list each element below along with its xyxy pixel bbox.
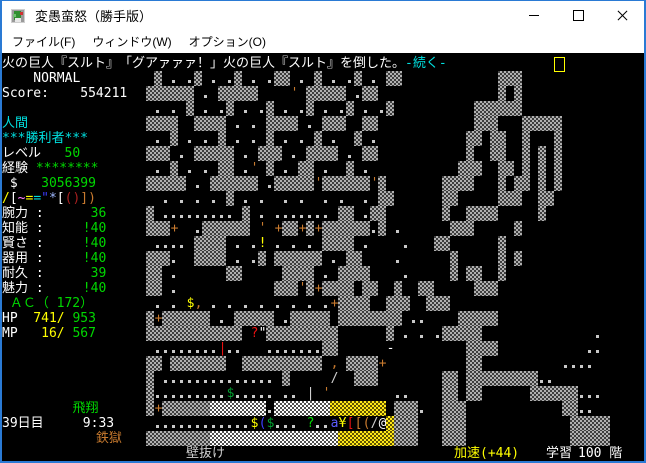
- map-floor-dot: [580, 395, 583, 398]
- map-granite-wall: [362, 116, 370, 131]
- map-granite-wall: [154, 281, 162, 296]
- map-granite-wall: [298, 311, 306, 326]
- map-floor-dot: [420, 320, 423, 323]
- map-granite-wall: [242, 311, 250, 326]
- map-granite-wall: [210, 221, 218, 236]
- map-granite-wall: [306, 266, 314, 281]
- map-granite-wall: [474, 101, 482, 116]
- map-granite-wall: [306, 86, 314, 101]
- map-granite-wall: [538, 161, 546, 176]
- map-closed-door: +: [170, 221, 179, 236]
- map-granite-wall: [498, 146, 506, 161]
- map-granite-wall: [146, 356, 154, 371]
- map-granite-wall: [194, 431, 202, 446]
- map-gold-green: $: [226, 386, 235, 401]
- map-floor-dot: [588, 410, 591, 413]
- map-floor-dot: [268, 410, 271, 413]
- status-item-2: 学習: [546, 446, 572, 459]
- map-granite-wall: [546, 116, 554, 131]
- map-floor-dot: [260, 200, 263, 203]
- map-floor-dot: [204, 395, 207, 398]
- map-floor-dot: [340, 110, 343, 113]
- map-granite-wall: [466, 356, 474, 371]
- map-quartz-wall: [322, 401, 330, 416]
- map-floor-dot: [180, 215, 183, 218]
- map-floor-dot: [172, 110, 175, 113]
- map-granite-wall: [466, 221, 474, 236]
- map-granite-wall: [474, 266, 482, 281]
- map-treasure-vein: [362, 401, 370, 416]
- map-granite-wall: [442, 371, 450, 386]
- map-granite-wall: [554, 131, 562, 146]
- map-floor-dot: [252, 140, 255, 143]
- sidebar-line-r25: 鉄獄: [2, 431, 122, 446]
- map-floor-dot: [196, 425, 199, 428]
- map-granite-wall: [146, 146, 154, 161]
- map-granite-wall: [458, 161, 466, 176]
- map-granite-wall: [538, 206, 546, 221]
- sidebar-line-r14: 耐久 : 39: [2, 266, 106, 281]
- map-granite-wall: [250, 356, 258, 371]
- minimize-button[interactable]: [512, 1, 556, 30]
- map-floor-dot: [180, 380, 183, 383]
- map-granite-wall: [498, 101, 506, 116]
- map-floor-dot: [284, 170, 287, 173]
- map-granite-wall: [338, 296, 346, 311]
- map-granite-wall: [258, 311, 266, 326]
- map-granite-wall: [394, 416, 402, 431]
- map-floor-dot: [156, 350, 159, 353]
- close-button[interactable]: [600, 1, 644, 30]
- map-floor-dot: [596, 350, 599, 353]
- map-granite-wall: [514, 221, 522, 236]
- map-floor-dot: [308, 245, 311, 248]
- map-granite-wall: [346, 101, 354, 116]
- map-granite-wall: [538, 191, 546, 206]
- map-granite-wall: [306, 146, 314, 161]
- map-floor-dot: [332, 80, 335, 83]
- map-floor-dot: [252, 395, 255, 398]
- map-granite-wall: [410, 401, 418, 416]
- map-floor-dot: [324, 110, 327, 113]
- map-granite-wall: [274, 356, 282, 371]
- map-granite-wall: [458, 416, 466, 431]
- map-granite-wall: [226, 101, 234, 116]
- map-floor-dot: [348, 80, 351, 83]
- map-granite-wall: [498, 251, 506, 266]
- map-granite-wall: [218, 176, 226, 191]
- sidebar-line-r5: ***勝利者***: [2, 131, 88, 146]
- map-granite-wall: [378, 176, 386, 191]
- map-floor-dot: [276, 245, 279, 248]
- map-granite-wall: [402, 416, 410, 431]
- map-floor-dot: [220, 425, 223, 428]
- map-granite-wall: [146, 116, 154, 131]
- map-floor-dot: [300, 200, 303, 203]
- map-granite-wall: [450, 401, 458, 416]
- map-granite-wall: [298, 176, 306, 191]
- map-floor-dot: [156, 245, 159, 248]
- map-floor-dot: [396, 230, 399, 233]
- map-granite-wall: [338, 206, 346, 221]
- sidebar-line-r16: ＡＣ（ 172）: [2, 296, 93, 311]
- map-floor-dot: [324, 200, 327, 203]
- map-granite-wall: [178, 326, 186, 341]
- map-floor-dot: [172, 350, 175, 353]
- map-floor-dot: [332, 140, 335, 143]
- map-floor-dot: [220, 320, 223, 323]
- map-granite-wall: [362, 86, 370, 101]
- map-floor-dot: [308, 350, 311, 353]
- map-granite-wall: [522, 146, 530, 161]
- window-title: 変愚蛮怒（勝手版）: [35, 6, 152, 25]
- map-treasure-vein: [338, 401, 346, 416]
- map-granite-wall: [514, 176, 522, 191]
- map-granite-wall: [474, 356, 482, 371]
- map-floor-dot: [292, 425, 295, 428]
- map-item: ,: [194, 296, 203, 311]
- sidebar-line-r6: レベル 50: [2, 146, 80, 161]
- map-granite-wall: [266, 146, 274, 161]
- map-granite-wall: [338, 221, 346, 236]
- map-granite-wall: [234, 86, 242, 101]
- sidebar-line-r2: Score: 554211: [2, 86, 127, 101]
- map-floor-dot: [372, 230, 375, 233]
- map-granite-wall: [370, 311, 378, 326]
- close-icon: [617, 10, 628, 21]
- map-granite-wall: [330, 116, 338, 131]
- map-granite-wall: [306, 221, 314, 236]
- map-granite-wall: [530, 371, 538, 386]
- map-floor-dot: [364, 110, 367, 113]
- map-granite-wall: [242, 206, 250, 221]
- title-bar[interactable]: 変愚蛮怒（勝手版）: [2, 1, 644, 30]
- map-floor-dot: [236, 125, 239, 128]
- map-granite-wall: [594, 416, 602, 431]
- map-granite-wall: [354, 131, 362, 146]
- map-granite-wall: [266, 326, 274, 341]
- map-floor-dot: [300, 350, 303, 353]
- map-floor-dot: [276, 305, 279, 308]
- map-granite-wall: [346, 221, 354, 236]
- map-granite-wall: [370, 281, 378, 296]
- map-treasure-vein: [354, 401, 362, 416]
- map-granite-wall: [282, 221, 290, 236]
- map-granite-wall: [306, 326, 314, 341]
- map-granite-wall: [162, 86, 170, 101]
- map-floor-dot: [324, 275, 327, 278]
- map-floor-dot: [164, 425, 167, 428]
- map-granite-wall: [402, 401, 410, 416]
- map-floor-dot: [172, 245, 175, 248]
- map-granite-wall: [250, 311, 258, 326]
- map-granite-wall: [218, 86, 226, 101]
- map-granite-wall: [202, 236, 210, 251]
- map-granite-wall: [602, 416, 610, 431]
- map-granite-wall: [298, 251, 306, 266]
- map-granite-wall: [178, 311, 186, 326]
- map-granite-wall: [266, 131, 274, 146]
- map-granite-wall: [306, 281, 314, 296]
- map-floor-dot: [364, 200, 367, 203]
- map-granite-wall: [498, 236, 506, 251]
- map-floor-dot: [284, 200, 287, 203]
- map-quartz-wall: [210, 401, 218, 416]
- map-granite-wall: [274, 326, 282, 341]
- map-granite-wall: [186, 311, 194, 326]
- map-granite-wall: [162, 401, 170, 416]
- sidebar-line-r18: MP 16/ 567: [2, 326, 96, 341]
- map-granite-wall: [322, 116, 330, 131]
- map-granite-wall: [498, 191, 506, 206]
- map-granite-wall: [242, 356, 250, 371]
- map-granite-wall: [458, 326, 466, 341]
- map-granite-wall: [338, 281, 346, 296]
- map-floor-dot: [244, 155, 247, 158]
- map-floor-dot: [164, 215, 167, 218]
- map-floor-dot: [404, 395, 407, 398]
- map-floor-dot: [244, 380, 247, 383]
- map-granite-wall: [146, 251, 154, 266]
- map-granite-wall: [482, 371, 490, 386]
- map-granite-wall: [474, 131, 482, 146]
- map-granite-wall: [242, 86, 250, 101]
- map-floor-dot: [220, 110, 223, 113]
- map-granite-wall: [162, 251, 170, 266]
- map-floor-dot: [396, 260, 399, 263]
- map-floor-dot: [268, 395, 271, 398]
- map-granite-wall: [442, 416, 450, 431]
- map-granite-wall: [146, 326, 154, 341]
- map-granite-wall: [442, 431, 450, 446]
- map-granite-wall: [314, 146, 322, 161]
- map-granite-wall: [386, 296, 394, 311]
- map-floor-dot: [172, 425, 175, 428]
- map-granite-wall: [194, 71, 202, 86]
- map-granite-wall: [450, 176, 458, 191]
- map-potion: !: [258, 236, 267, 251]
- map-floor-dot: [268, 80, 271, 83]
- map-granite-wall: [474, 386, 482, 401]
- map-floor-dot: [580, 365, 583, 368]
- map-floor-dot: [188, 350, 191, 353]
- map-granite-wall: [434, 236, 442, 251]
- map-floor-dot: [212, 200, 215, 203]
- map-granite-wall: [170, 131, 178, 146]
- map-granite-wall: [202, 116, 210, 131]
- map-open-door: ': [250, 161, 259, 176]
- map-granite-wall: [274, 146, 282, 161]
- map-granite-wall: [322, 176, 330, 191]
- sidebar-line-r13: 器用 : !40: [2, 251, 106, 266]
- map-floor-dot: [196, 380, 199, 383]
- map-granite-wall: [522, 176, 530, 191]
- map-floor-dot: [316, 350, 319, 353]
- map-granite-wall: [194, 311, 202, 326]
- map-granite-wall: [554, 176, 562, 191]
- map-granite-wall: [170, 116, 178, 131]
- maximize-button[interactable]: [556, 1, 600, 30]
- map-quartz-wall: [290, 401, 298, 416]
- map-granite-wall: [458, 401, 466, 416]
- map-floor-dot: [252, 380, 255, 383]
- map-granite-wall: [426, 281, 434, 296]
- sidebar-line-r4: 人間: [2, 116, 28, 131]
- map-granite-wall: [386, 191, 394, 206]
- map-floor-dot: [300, 80, 303, 83]
- map-floor-dot: [188, 140, 191, 143]
- map-floor-dot: [268, 185, 271, 188]
- map-granite-wall: [218, 236, 226, 251]
- map-granite-wall: [490, 101, 498, 116]
- map-granite-wall: [354, 221, 362, 236]
- map-quartz-wall: [226, 431, 234, 446]
- map-floor-dot: [172, 275, 175, 278]
- map-granite-wall: [194, 251, 202, 266]
- map-quartz-wall: [322, 431, 330, 446]
- map-granite-wall: [146, 266, 154, 281]
- map-quartz-wall: [306, 401, 314, 416]
- map-floor-dot: [228, 425, 231, 428]
- map-floor-dot: [404, 275, 407, 278]
- map-granite-wall: [162, 116, 170, 131]
- status-item-0: 壁抜け: [186, 446, 225, 459]
- map-floor-dot: [548, 380, 551, 383]
- map-granite-wall: [458, 221, 466, 236]
- map-treasure-vein: [370, 401, 378, 416]
- map-granite-wall: [210, 326, 218, 341]
- map-granite-wall: [322, 86, 330, 101]
- map-floor-dot: [596, 395, 599, 398]
- map-granite-wall: [490, 131, 498, 146]
- map-granite-wall: [474, 326, 482, 341]
- map-granite-wall: [218, 116, 226, 131]
- map-floor-dot: [276, 350, 279, 353]
- map-granite-wall: [170, 326, 178, 341]
- map-granite-wall: [154, 146, 162, 161]
- map-granite-wall: [242, 176, 250, 191]
- map-granite-wall: [154, 326, 162, 341]
- map-quartz-wall: [314, 401, 322, 416]
- menu-item-2[interactable]: オプション(O): [182, 33, 273, 50]
- map-granite-wall: [290, 356, 298, 371]
- map-quartz-wall: [314, 431, 322, 446]
- map-granite-wall: [306, 161, 314, 176]
- map-floor-dot: [268, 380, 271, 383]
- map-granite-wall: [234, 176, 242, 191]
- map-granite-wall: [458, 176, 466, 191]
- map-granite-wall: [522, 116, 530, 131]
- map-granite-wall: [506, 371, 514, 386]
- map-granite-wall: [538, 116, 546, 131]
- map-granite-wall: [506, 71, 514, 86]
- map-granite-wall: [162, 176, 170, 191]
- map-floor-dot: [436, 335, 439, 338]
- map-floor-dot: [204, 350, 207, 353]
- map-granite-wall: [346, 266, 354, 281]
- map-floor-dot: [404, 335, 407, 338]
- map-granite-wall: [242, 221, 250, 236]
- map-floor-dot: [172, 80, 175, 83]
- map-quartz-wall: [274, 401, 282, 416]
- map-floor-dot: [372, 140, 375, 143]
- map-granite-wall: [162, 326, 170, 341]
- map-granite-wall: [386, 101, 394, 116]
- map-granite-wall: [474, 371, 482, 386]
- menu-item-1[interactable]: ウィンドウ(W): [85, 33, 178, 50]
- map-granite-wall: [466, 326, 474, 341]
- sidebar-line-r7: 経験 ********: [2, 161, 98, 176]
- map-granite-wall: [466, 176, 474, 191]
- map-quartz-wall: [250, 401, 258, 416]
- map-granite-wall: [378, 311, 386, 326]
- map-floor-dot: [260, 305, 263, 308]
- map-treasure-vein: [370, 431, 378, 446]
- map-quartz-wall: [306, 431, 314, 446]
- map-granite-wall: [570, 416, 578, 431]
- map-floor-dot: [236, 140, 239, 143]
- text-cursor: [554, 57, 565, 72]
- map-granite-wall: [210, 236, 218, 251]
- map-granite-wall: [338, 116, 346, 131]
- map-granite-wall: [338, 176, 346, 191]
- map-granite-wall: [410, 431, 418, 446]
- map-floor-dot: [180, 245, 183, 248]
- map-granite-wall: [402, 431, 410, 446]
- map-granite-wall: [354, 266, 362, 281]
- sidebar-line-r23: 飛翔: [2, 401, 98, 416]
- map-granite-wall: [258, 356, 266, 371]
- map-quartz-wall: [282, 401, 290, 416]
- map-quartz-wall: [226, 401, 234, 416]
- map-granite-wall: [194, 356, 202, 371]
- map-floor-dot: [252, 80, 255, 83]
- map-floor-dot: [324, 305, 327, 308]
- map-granite-wall: [538, 146, 546, 161]
- map-floor-dot: [308, 305, 311, 308]
- map-floor-dot: [284, 215, 287, 218]
- map-granite-wall: [362, 356, 370, 371]
- menu-item-0[interactable]: ファイル(F): [5, 33, 82, 50]
- map-granite-wall: [258, 146, 266, 161]
- map-floor-dot: [292, 155, 295, 158]
- map-granite-wall: [322, 221, 330, 236]
- sidebar-line-r8: $ 3056399: [2, 176, 96, 191]
- map-granite-wall: [538, 386, 546, 401]
- status-item-1: 加速(+44): [454, 446, 519, 459]
- map-floor-dot: [580, 410, 583, 413]
- map-granite-wall: [298, 356, 306, 371]
- map-granite-wall: [386, 71, 394, 86]
- map-granite-wall: [146, 86, 154, 101]
- map-granite-wall: [378, 191, 386, 206]
- map-granite-wall: [546, 386, 554, 401]
- map-granite-wall: [450, 191, 458, 206]
- map-floor-dot: [164, 200, 167, 203]
- map-granite-wall: [338, 236, 346, 251]
- map-floor-dot: [196, 350, 199, 353]
- map-treasure-vein: [378, 401, 386, 416]
- map-quartz-wall: [242, 431, 250, 446]
- map-floor-dot: [204, 425, 207, 428]
- map-floor-dot: [284, 110, 287, 113]
- map-granite-wall: [498, 176, 506, 191]
- map-granite-wall: [354, 371, 362, 386]
- map-floor-dot: [164, 395, 167, 398]
- map-granite-wall: [410, 416, 418, 431]
- map-granite-wall: [466, 266, 474, 281]
- map-quartz-wall: [234, 431, 242, 446]
